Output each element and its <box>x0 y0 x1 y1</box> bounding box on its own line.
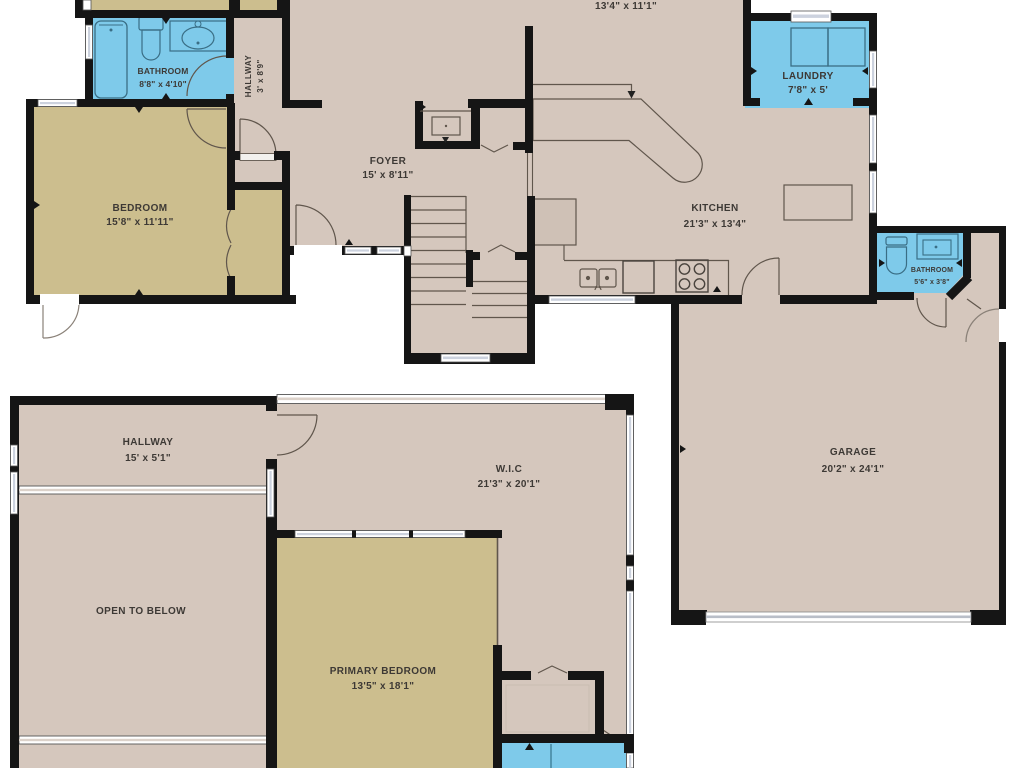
svg-text:20'2" x 24'1": 20'2" x 24'1" <box>822 464 885 475</box>
svg-text:5'6" x 3'8": 5'6" x 3'8" <box>914 279 950 286</box>
svg-text:15' x 8'11": 15' x 8'11" <box>362 170 413 181</box>
svg-text:15'8" x 11'11": 15'8" x 11'11" <box>106 217 173 228</box>
svg-text:21'3" x 13'4": 21'3" x 13'4" <box>684 219 747 230</box>
svg-text:BATHROOM: BATHROOM <box>911 267 953 274</box>
svg-text:OPEN TO BELOW: OPEN TO BELOW <box>96 606 186 617</box>
svg-text:8'8" x 4'10": 8'8" x 4'10" <box>139 79 187 89</box>
svg-text:PRIMARY BEDROOM: PRIMARY BEDROOM <box>330 666 437 677</box>
svg-text:GARAGE: GARAGE <box>830 447 876 458</box>
svg-text:13'5" x 18'1": 13'5" x 18'1" <box>352 681 415 692</box>
svg-text:KITCHEN: KITCHEN <box>691 203 738 214</box>
svg-text:HALLWAY: HALLWAY <box>123 437 174 448</box>
svg-text:BEDROOM: BEDROOM <box>112 203 167 214</box>
svg-text:21'3" x 20'1": 21'3" x 20'1" <box>478 479 541 490</box>
svg-text:HALLWAY: HALLWAY <box>244 55 253 98</box>
svg-text:13'4" x 11'1": 13'4" x 11'1" <box>595 1 657 12</box>
svg-text:BATHROOM: BATHROOM <box>137 66 188 76</box>
svg-text:15' x 5'1": 15' x 5'1" <box>125 453 171 464</box>
svg-text:3' x 8'9": 3' x 8'9" <box>256 59 265 92</box>
svg-text:FOYER: FOYER <box>370 156 407 167</box>
svg-text:W.I.C: W.I.C <box>496 464 522 475</box>
svg-text:LAUNDRY: LAUNDRY <box>782 71 833 82</box>
svg-text:7'8" x 5': 7'8" x 5' <box>788 85 828 96</box>
